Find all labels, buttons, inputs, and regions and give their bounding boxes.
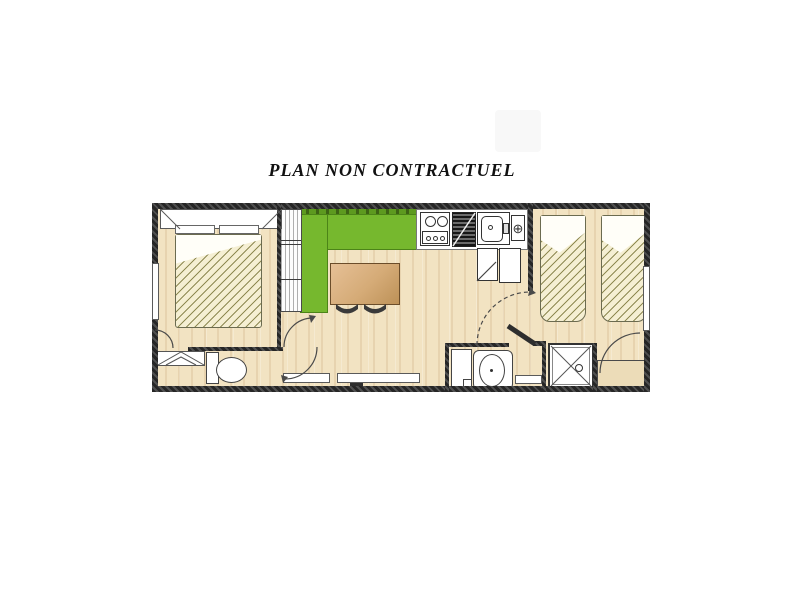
entrance-door-arc — [285, 347, 317, 379]
floor-plan: ⊕ — [152, 203, 650, 392]
wall-diagonal — [508, 326, 535, 344]
page-title: PLAN NON CONTRACTUEL — [0, 160, 784, 181]
scan-artifact — [495, 110, 541, 152]
linework-overlay — [152, 203, 650, 392]
door-arcs — [155, 292, 640, 379]
shower-cross — [551, 346, 591, 386]
bedroom1-door-arc — [284, 318, 313, 347]
draining-board-line — [453, 213, 475, 246]
shelf-unit-lines — [158, 352, 204, 365]
fridge-door-line — [477, 262, 496, 281]
overhead-cabinet-lines — [161, 210, 281, 229]
wc-door-arc — [155, 330, 173, 348]
door-arrows — [281, 288, 536, 383]
bedroom2-door-arc — [600, 333, 640, 373]
chairs — [336, 304, 386, 314]
